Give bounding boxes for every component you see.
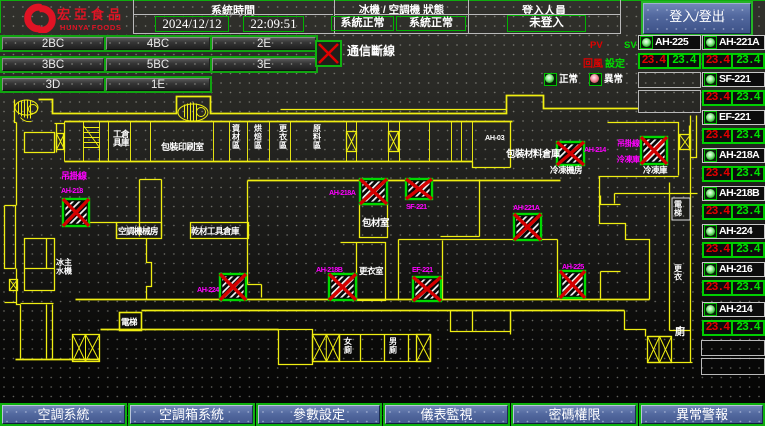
svg-text:AH-225: AH-225 (562, 262, 584, 271)
svg-text:主機: 主機 (64, 257, 72, 276)
svg-text:廁: 廁 (675, 325, 685, 338)
svg-text:AH-218B: AH-218B (316, 265, 343, 274)
svg-text:烘焙區: 烘焙區 (253, 123, 262, 150)
svg-text:SF-221: SF-221 (406, 202, 427, 211)
svg-text:吊掛線: 吊掛線 (61, 170, 87, 181)
svg-text:資材區: 資材區 (232, 123, 240, 150)
svg-text:AH-03: AH-03 (485, 133, 505, 142)
svg-text:空調機械房: 空調機械房 (118, 226, 158, 236)
svg-text:男廁: 男廁 (389, 337, 397, 355)
svg-text:乾材工具倉庫: 乾材工具倉庫 (191, 226, 240, 236)
svg-text:宏亞食品: 宏亞食品 (57, 7, 121, 22)
svg-text:倉庫: 倉庫 (120, 129, 130, 148)
svg-text:HUNYA FOODS: HUNYA FOODS (60, 23, 121, 32)
svg-text:冷凍庫: 冷凍庫 (617, 154, 640, 164)
svg-text:包裝印刷室: 包裝印刷室 (160, 141, 204, 152)
svg-text:AH-224: AH-224 (197, 285, 219, 294)
svg-text:包材室: 包材室 (361, 217, 390, 229)
svg-text:吊掛線: 吊掛線 (617, 138, 640, 148)
svg-text:AH-218: AH-218 (61, 186, 83, 195)
svg-text:冷凍機房: 冷凍機房 (550, 165, 582, 175)
svg-text:電梯: 電梯 (121, 317, 138, 327)
svg-text:包裝材料倉庫: 包裝材料倉庫 (505, 148, 561, 160)
svg-text:AH-218A: AH-218A (329, 188, 356, 197)
svg-text:更衣室: 更衣室 (359, 266, 384, 276)
svg-text:AH-214: AH-214 (584, 145, 606, 154)
svg-text:AH-221A: AH-221A (513, 203, 540, 212)
svg-text:EF-221: EF-221 (412, 265, 433, 274)
svg-text:更衣區: 更衣區 (279, 123, 288, 150)
svg-text:原料區: 原料區 (313, 124, 321, 150)
svg-text:女廁: 女廁 (344, 336, 352, 355)
svg-text:電梯: 電梯 (674, 199, 682, 218)
svg-text:冷凍庫: 冷凍庫 (643, 165, 668, 175)
svg-text:更衣: 更衣 (674, 263, 683, 282)
